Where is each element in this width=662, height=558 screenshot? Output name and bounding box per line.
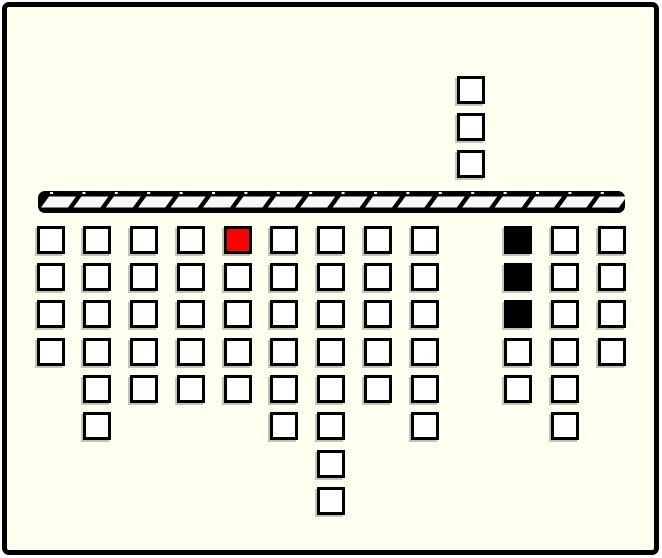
white-block[interactable] <box>504 338 532 366</box>
white-block[interactable] <box>364 375 392 403</box>
white-block[interactable] <box>411 412 439 440</box>
white-block[interactable] <box>83 226 111 254</box>
white-block[interactable] <box>130 375 158 403</box>
white-block[interactable] <box>411 338 439 366</box>
white-block[interactable] <box>317 450 345 478</box>
white-block[interactable] <box>130 338 158 366</box>
white-block[interactable] <box>224 375 252 403</box>
white-block[interactable] <box>364 263 392 291</box>
white-block[interactable] <box>177 263 205 291</box>
white-block[interactable] <box>130 263 158 291</box>
white-block[interactable] <box>411 300 439 328</box>
white-block[interactable] <box>364 226 392 254</box>
red-block[interactable] <box>224 226 252 254</box>
black-block[interactable] <box>504 300 532 328</box>
white-block[interactable] <box>37 226 65 254</box>
white-block[interactable] <box>177 226 205 254</box>
white-block[interactable] <box>37 300 65 328</box>
black-block[interactable] <box>504 226 532 254</box>
white-block[interactable] <box>317 487 345 515</box>
white-block[interactable] <box>364 300 392 328</box>
white-block[interactable] <box>411 263 439 291</box>
blocks-layer <box>0 0 662 558</box>
white-block[interactable] <box>83 412 111 440</box>
white-block[interactable] <box>270 412 298 440</box>
white-block[interactable] <box>83 300 111 328</box>
white-block[interactable] <box>130 300 158 328</box>
white-block[interactable] <box>551 412 579 440</box>
white-block[interactable] <box>457 76 485 104</box>
white-block[interactable] <box>270 300 298 328</box>
white-block[interactable] <box>551 226 579 254</box>
white-block[interactable] <box>317 226 345 254</box>
white-block[interactable] <box>177 338 205 366</box>
white-block[interactable] <box>317 412 345 440</box>
white-block[interactable] <box>270 226 298 254</box>
white-block[interactable] <box>83 375 111 403</box>
white-block[interactable] <box>270 375 298 403</box>
white-block[interactable] <box>411 226 439 254</box>
white-block[interactable] <box>411 375 439 403</box>
white-block[interactable] <box>317 300 345 328</box>
white-block[interactable] <box>177 300 205 328</box>
white-block[interactable] <box>224 338 252 366</box>
white-block[interactable] <box>457 113 485 141</box>
white-block[interactable] <box>504 375 532 403</box>
black-block[interactable] <box>504 263 532 291</box>
white-block[interactable] <box>317 338 345 366</box>
white-block[interactable] <box>83 338 111 366</box>
white-block[interactable] <box>317 263 345 291</box>
white-block[interactable] <box>224 300 252 328</box>
white-block[interactable] <box>224 263 252 291</box>
white-block[interactable] <box>177 375 205 403</box>
white-block[interactable] <box>37 263 65 291</box>
white-block[interactable] <box>37 338 65 366</box>
white-block[interactable] <box>270 338 298 366</box>
white-block[interactable] <box>364 338 392 366</box>
white-block[interactable] <box>83 263 111 291</box>
white-block[interactable] <box>598 226 626 254</box>
white-block[interactable] <box>551 263 579 291</box>
white-block[interactable] <box>598 300 626 328</box>
white-block[interactable] <box>598 338 626 366</box>
white-block[interactable] <box>598 263 626 291</box>
white-block[interactable] <box>551 375 579 403</box>
white-block[interactable] <box>551 300 579 328</box>
white-block[interactable] <box>457 150 485 178</box>
white-block[interactable] <box>317 375 345 403</box>
white-block[interactable] <box>551 338 579 366</box>
white-block[interactable] <box>270 263 298 291</box>
white-block[interactable] <box>130 226 158 254</box>
